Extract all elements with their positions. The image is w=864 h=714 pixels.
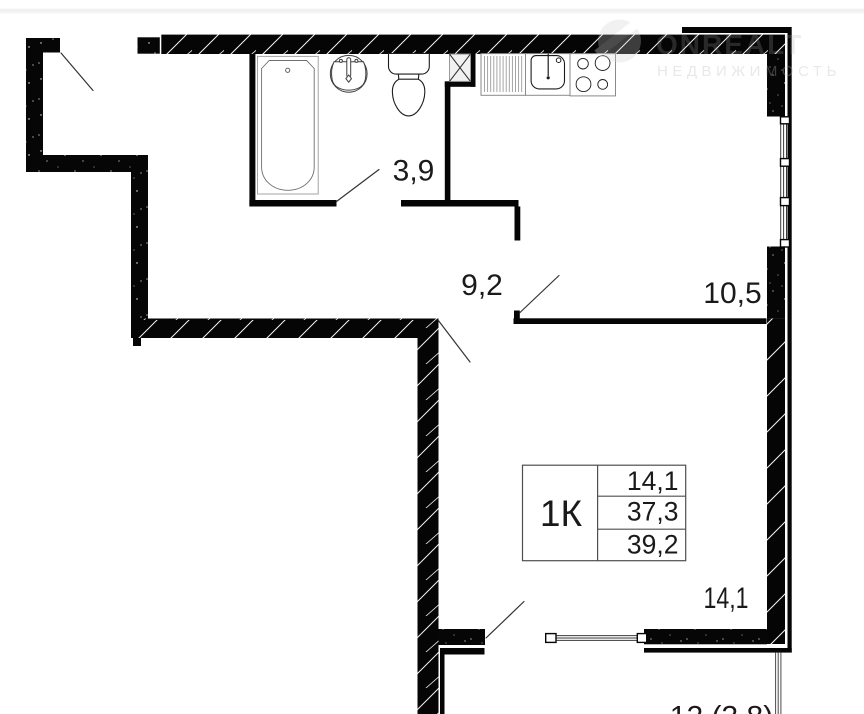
svg-text:37,3: 37,3 (627, 497, 679, 527)
svg-text:ONREALT: ONREALT (656, 29, 803, 60)
svg-text:3,9: 3,9 (393, 155, 435, 188)
svg-text:1К: 1К (540, 493, 583, 534)
svg-text:НЕДВИЖИМОСТЬ: НЕДВИЖИМОСТЬ (657, 63, 841, 80)
svg-text:12 (3,8): 12 (3,8) (670, 701, 773, 714)
svg-text:14,1: 14,1 (704, 582, 749, 615)
svg-text:9,2: 9,2 (461, 269, 503, 302)
svg-text:39,2: 39,2 (627, 530, 679, 560)
svg-text:14,1: 14,1 (627, 466, 679, 496)
svg-text:10,5: 10,5 (703, 277, 761, 310)
